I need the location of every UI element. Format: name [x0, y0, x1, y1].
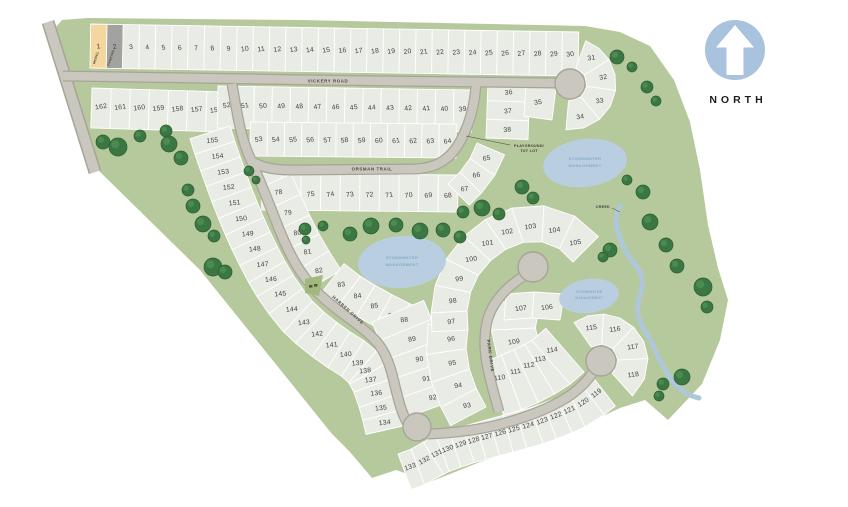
- tree-highlight: [345, 229, 351, 235]
- lot-number-15: 15: [322, 47, 331, 55]
- tree-highlight: [365, 220, 372, 227]
- tree-highlight: [643, 83, 648, 88]
- tree-highlight: [644, 216, 651, 223]
- lot-number-50: 50: [259, 102, 268, 110]
- lot-number-64: 64: [443, 138, 452, 146]
- lot-number-62: 62: [409, 137, 418, 145]
- lot-number-32: 32: [599, 74, 608, 82]
- lot-number-152: 152: [223, 184, 236, 192]
- lot-number-99: 99: [455, 275, 464, 283]
- tree-highlight: [253, 177, 257, 181]
- lot-number-92: 92: [428, 394, 437, 402]
- tree-highlight: [599, 253, 604, 258]
- lot-number-140: 140: [340, 351, 353, 359]
- lot-number-25: 25: [485, 49, 494, 57]
- tree-highlight: [162, 127, 167, 132]
- tree-highlight: [245, 167, 250, 172]
- lot-number-134: 134: [379, 419, 392, 427]
- vickery-road-label: VICKERY ROAD: [308, 79, 349, 84]
- lot-number-36: 36: [504, 89, 513, 97]
- lot-number-139: 139: [351, 359, 364, 367]
- lot-number-21: 21: [420, 48, 429, 56]
- lot-number-42: 42: [404, 105, 413, 113]
- lot-number-31: 31: [587, 54, 596, 62]
- lot-number-39: 39: [458, 106, 467, 114]
- tree-highlight: [612, 52, 618, 58]
- pond-central-label-1: STORMWATER: [386, 255, 419, 260]
- lot-number-154: 154: [211, 153, 224, 161]
- pond-northeast-label-2: MANAGEMENT: [568, 163, 601, 168]
- pond-central-label-2: MANAGEMENT: [385, 262, 418, 267]
- lot-number-79: 79: [284, 209, 293, 217]
- lot-number-23: 23: [452, 49, 461, 57]
- lot-number-75: 75: [306, 191, 315, 199]
- north-arrow: NORTH: [705, 20, 767, 106]
- lot-number-47: 47: [313, 103, 322, 111]
- lot-number-46: 46: [331, 104, 340, 112]
- tree-highlight: [391, 220, 397, 226]
- tree-highlight: [303, 237, 307, 241]
- lot-number-40: 40: [440, 105, 449, 113]
- lot-number-11: 11: [257, 46, 265, 54]
- lot-number-44: 44: [368, 104, 377, 112]
- lot-number-67: 67: [460, 185, 469, 193]
- lot-number-29: 29: [550, 50, 559, 58]
- lot-number-68: 68: [444, 192, 453, 200]
- lot-number-89: 89: [408, 336, 417, 344]
- lot-number-81: 81: [303, 248, 312, 256]
- playground-label-1: PLAYGROUND/: [514, 144, 545, 148]
- lot-number-17: 17: [354, 47, 363, 55]
- lot-number-144: 144: [286, 306, 299, 314]
- creek-label: CREEK: [596, 205, 610, 209]
- site-plan-svg: 1234567891011121314151617181920212223242…: [0, 0, 848, 507]
- lot-number-95: 95: [448, 360, 457, 368]
- lot-number-37: 37: [504, 108, 513, 116]
- lot-number-66: 66: [472, 172, 481, 180]
- lot-number-63: 63: [426, 138, 435, 146]
- lot-number-38: 38: [503, 126, 512, 134]
- lot-number-41: 41: [422, 105, 431, 113]
- tree-highlight: [319, 222, 324, 227]
- lot-number-97: 97: [447, 318, 456, 326]
- lot-number-96: 96: [447, 336, 456, 344]
- tree-highlight: [136, 132, 141, 137]
- lot-number-84: 84: [353, 292, 362, 300]
- tree-highlight: [111, 140, 119, 148]
- lot-number-56: 56: [306, 136, 315, 144]
- tree-highlight: [438, 225, 444, 231]
- tree-highlight: [652, 97, 657, 102]
- lot-number-26: 26: [501, 50, 510, 58]
- lot-number-150: 150: [235, 215, 248, 223]
- lot-number-70: 70: [404, 192, 413, 200]
- lot-number-12: 12: [273, 46, 282, 54]
- lot-number-82: 82: [315, 267, 324, 275]
- lot-number-57: 57: [323, 137, 332, 145]
- tree-highlight: [623, 176, 628, 181]
- lot-number-73: 73: [346, 191, 355, 199]
- knuckle-circle: [403, 413, 431, 441]
- tree-highlight: [659, 380, 664, 385]
- lot-number-54: 54: [272, 136, 281, 144]
- tree-highlight: [459, 208, 464, 213]
- lot-number-24: 24: [468, 49, 477, 57]
- lot-number-43: 43: [386, 104, 395, 112]
- lot-number-71: 71: [385, 191, 394, 199]
- tree-highlight: [456, 233, 461, 238]
- lot-number-34: 34: [576, 113, 585, 121]
- tree-highlight: [696, 280, 704, 288]
- culdesac-park: [518, 252, 548, 282]
- tree-highlight: [184, 186, 189, 191]
- tree-highlight: [197, 218, 204, 225]
- lot-number-98: 98: [448, 297, 457, 305]
- lot-number-78: 78: [274, 189, 283, 197]
- lot-number-14: 14: [306, 46, 315, 54]
- tree-highlight: [176, 153, 182, 159]
- lot-number-18: 18: [371, 48, 380, 56]
- lot-number-94: 94: [454, 382, 463, 390]
- lot-number-142: 142: [311, 330, 324, 338]
- lot-number-149: 149: [242, 230, 255, 238]
- lot-number-22: 22: [436, 49, 445, 57]
- site-plan-map: 1234567891011121314151617181920212223242…: [0, 0, 848, 507]
- tree-highlight: [628, 63, 633, 68]
- orsman-trail-label: ORSMAN TRAIL: [352, 167, 393, 172]
- lot-number-111: 111: [510, 368, 522, 376]
- lot-number-48: 48: [295, 103, 304, 111]
- playground-label-2: TOT LOT: [520, 149, 538, 153]
- tree-highlight: [206, 260, 214, 268]
- lot-number-53: 53: [254, 136, 263, 144]
- tree-highlight: [529, 194, 534, 199]
- tree-highlight: [98, 137, 104, 143]
- lot-number-153: 153: [217, 168, 230, 176]
- tree-highlight: [210, 232, 215, 237]
- lot-number-88: 88: [400, 316, 409, 324]
- tree-highlight: [655, 392, 660, 397]
- lot-number-141: 141: [326, 341, 339, 349]
- tree-highlight: [163, 138, 170, 145]
- north-label: NORTH: [709, 94, 766, 106]
- tree-highlight: [638, 187, 644, 193]
- lot-number-65: 65: [482, 155, 491, 163]
- lot-number-143: 143: [298, 319, 311, 327]
- tree-highlight: [301, 225, 306, 230]
- lot-number-27: 27: [517, 50, 526, 58]
- lot-number-60: 60: [375, 137, 384, 145]
- lot-number-136: 136: [370, 390, 383, 398]
- lot-number-91: 91: [422, 375, 431, 383]
- culdesac-east: [586, 346, 616, 376]
- pond-east-label-2: MANAGEMENT: [575, 296, 602, 300]
- lot-number-59: 59: [357, 137, 366, 145]
- lot-number-19: 19: [387, 48, 396, 56]
- lot-number-148: 148: [249, 245, 262, 253]
- lot-number-135: 135: [375, 404, 388, 412]
- lot-number-137: 137: [365, 376, 378, 384]
- lot-number-35: 35: [534, 99, 543, 107]
- lot-number-93: 93: [463, 402, 472, 410]
- culdesac-vickery: [555, 69, 585, 99]
- lot-number-83: 83: [337, 281, 346, 289]
- tree-highlight: [605, 245, 611, 251]
- lot-number-69: 69: [424, 192, 433, 200]
- lot-number-30: 30: [566, 51, 575, 59]
- lot-number-33: 33: [595, 97, 604, 105]
- lot-number-74: 74: [326, 191, 335, 199]
- tree-highlight: [661, 240, 667, 246]
- pond-northeast-label-1: STORMWATER: [569, 156, 602, 161]
- lot-number-151: 151: [229, 199, 242, 207]
- tree-highlight: [676, 371, 683, 378]
- lot-number-55: 55: [289, 136, 298, 144]
- tree-highlight: [220, 267, 226, 273]
- tree-highlight: [495, 210, 500, 215]
- lot-number-58: 58: [340, 137, 349, 145]
- lot-number-147: 147: [257, 261, 270, 269]
- lot-number-45: 45: [349, 104, 358, 112]
- lot-number-72: 72: [365, 191, 374, 199]
- lot-number-155: 155: [206, 137, 219, 145]
- lot-number-28: 28: [533, 50, 542, 58]
- tree-highlight: [703, 303, 708, 308]
- pond-east-label-1: STORMWATER: [576, 290, 603, 294]
- lot-number-90: 90: [415, 356, 424, 364]
- tree-highlight: [517, 182, 523, 188]
- lot-number-85: 85: [370, 302, 379, 310]
- lot-number-146: 146: [265, 276, 278, 284]
- lot-number-145: 145: [274, 290, 287, 298]
- lot-number-20: 20: [403, 48, 412, 56]
- tree-highlight: [672, 261, 678, 267]
- tree-highlight: [188, 201, 194, 207]
- tree-highlight: [476, 202, 483, 209]
- lot-number-13: 13: [289, 46, 298, 54]
- lot-number-61: 61: [392, 137, 401, 145]
- lot-number-49: 49: [277, 103, 286, 111]
- lot-number-16: 16: [338, 47, 347, 55]
- tree-highlight: [414, 225, 421, 232]
- lot-number-10: 10: [241, 45, 250, 53]
